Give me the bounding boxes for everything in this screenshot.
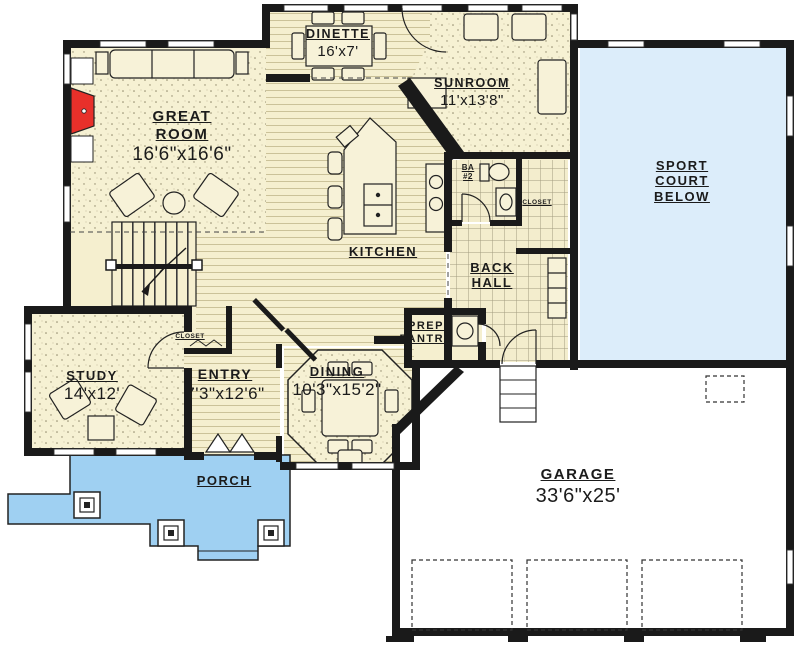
window <box>787 550 793 584</box>
wall <box>276 344 282 368</box>
wall <box>24 448 192 456</box>
wall <box>786 40 794 370</box>
vanity-sink <box>500 194 512 210</box>
dinette-table <box>306 26 372 66</box>
floor-plan: GREAT ROOM 16'6"x16'6" DINETTE 16'x7' SU… <box>0 0 800 648</box>
wall <box>478 308 486 324</box>
wall <box>444 152 452 226</box>
sink-drain <box>376 193 379 196</box>
garage-steps <box>500 366 536 422</box>
wall-stub <box>386 636 414 642</box>
window <box>116 449 156 455</box>
entry-floor <box>184 345 280 457</box>
wall <box>226 306 232 354</box>
dinette-chair <box>342 12 364 24</box>
fireplace-builtin <box>71 58 93 84</box>
window <box>608 41 644 47</box>
sunroom-loveseat <box>538 60 566 114</box>
floor-plan-drawing <box>0 0 800 648</box>
wall <box>392 424 400 636</box>
newel-post-left <box>106 260 116 270</box>
sunroom-chair <box>512 14 546 40</box>
side-table <box>236 52 248 74</box>
wall <box>63 228 71 314</box>
wall <box>266 74 310 82</box>
fireplace-builtin <box>71 136 93 162</box>
window <box>787 226 793 266</box>
dinette-chair <box>374 33 386 59</box>
wall <box>536 360 574 368</box>
bar-stool <box>328 218 342 240</box>
sink-drain <box>376 213 379 216</box>
wall <box>392 628 794 636</box>
wall <box>570 4 578 370</box>
wall <box>444 220 462 226</box>
dining-table <box>322 380 378 436</box>
garage-floor <box>398 372 788 634</box>
window <box>284 5 328 11</box>
stair-rail <box>112 264 196 269</box>
porch-column <box>258 520 284 546</box>
window <box>344 5 388 11</box>
staircase <box>106 222 202 306</box>
dinette-chair <box>292 33 304 59</box>
wall <box>63 40 270 48</box>
wall-oven <box>430 176 443 189</box>
wall <box>184 452 204 460</box>
window <box>402 5 442 11</box>
wall <box>404 308 412 364</box>
window <box>54 449 94 455</box>
wall <box>262 4 270 48</box>
window <box>25 324 31 360</box>
window <box>787 96 793 136</box>
toilet-bowl <box>489 164 509 181</box>
wall-oven <box>430 198 443 211</box>
wall <box>490 220 522 226</box>
porch-floor <box>8 455 290 560</box>
dining-chair <box>328 362 348 375</box>
wall <box>570 360 794 368</box>
window <box>64 54 70 84</box>
study-table <box>88 416 114 440</box>
fireplace-center <box>82 109 86 113</box>
side-table <box>96 52 108 74</box>
window <box>571 14 577 40</box>
dinette-chair <box>312 12 334 24</box>
bar-stool <box>328 152 342 174</box>
wall <box>786 368 794 636</box>
wall-stub <box>508 636 528 642</box>
window <box>64 186 70 222</box>
window <box>25 372 31 412</box>
wall <box>24 306 190 314</box>
wall-stub <box>740 636 766 642</box>
sport-court-floor <box>580 47 788 363</box>
great-room-sofa <box>110 50 234 78</box>
sunroom-chair <box>464 14 498 40</box>
window <box>352 463 394 469</box>
fireplace <box>71 58 94 162</box>
dining-chair <box>352 362 372 375</box>
wall <box>184 348 232 354</box>
window <box>468 5 508 11</box>
dining-chair <box>385 390 398 412</box>
pantry-sink <box>457 323 473 339</box>
dining-chair <box>302 390 315 412</box>
porch-column <box>74 492 100 518</box>
round-table <box>163 192 185 214</box>
wall-stub <box>624 636 644 642</box>
newel-post-right <box>192 260 202 270</box>
window <box>522 5 562 11</box>
wall <box>516 156 522 226</box>
wall <box>516 248 572 254</box>
porch-column <box>158 520 184 546</box>
bar-stool <box>328 186 342 208</box>
wall <box>444 226 452 252</box>
wall <box>444 152 570 159</box>
window <box>168 41 214 47</box>
window <box>724 41 760 47</box>
wall <box>184 306 192 332</box>
window <box>296 463 338 469</box>
toilet-tank <box>480 164 489 181</box>
wall <box>184 368 192 456</box>
wall <box>276 436 282 462</box>
window <box>100 41 146 47</box>
wall <box>444 298 452 364</box>
